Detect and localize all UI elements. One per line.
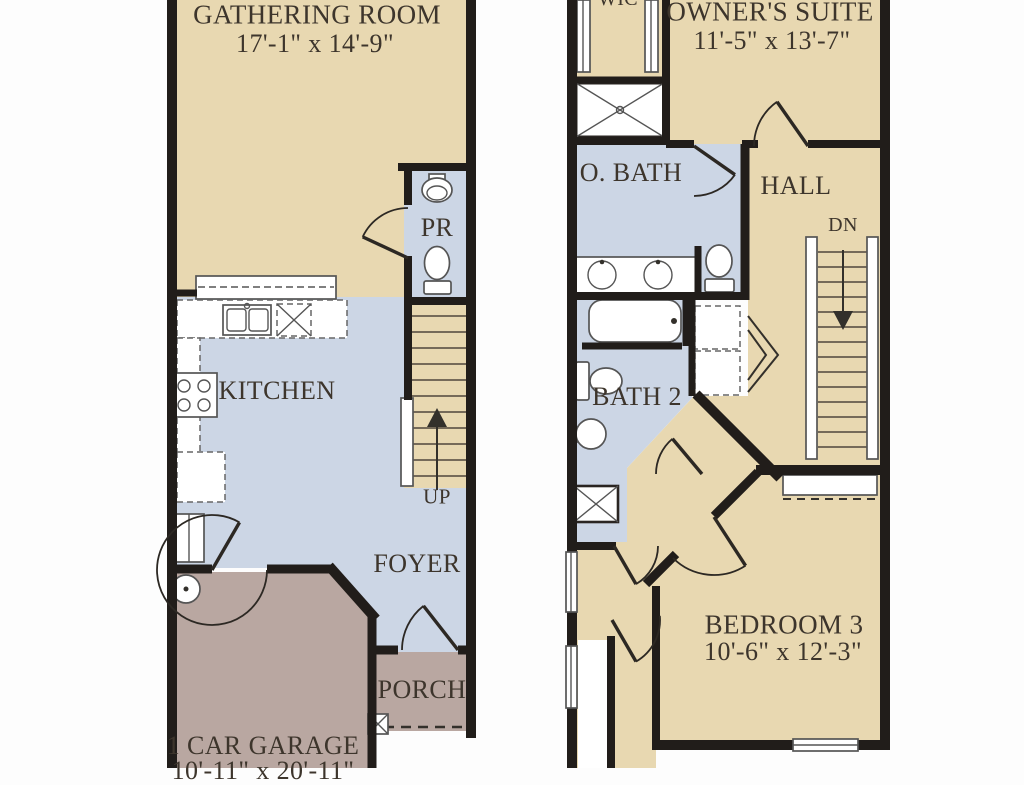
- owners-bath-label: O. BATH: [580, 160, 682, 186]
- owners-suite-label: OWNER'S SUITE: [666, 0, 873, 26]
- foyer-closet: [175, 514, 204, 562]
- double-vanity: [572, 257, 696, 293]
- floorplan-drawing: [0, 0, 1024, 768]
- kitchen-peninsula-counter: [196, 276, 336, 299]
- bedroom3-dims: 10'-6" x 12'-3": [704, 639, 862, 665]
- kitchen-sink: [223, 304, 271, 336]
- up-label: UP: [423, 487, 451, 508]
- bedroom3-closet: [783, 475, 877, 499]
- owners-suite-dims: 11'-5" x 13'-7": [694, 28, 851, 54]
- gathering-room-dims: 17'-1" x 14'-9": [236, 31, 394, 57]
- void-area: [578, 640, 608, 768]
- pr-label: PR: [421, 215, 454, 241]
- window: [566, 552, 577, 612]
- refrigerator: [177, 452, 225, 502]
- dishwasher: [277, 304, 311, 336]
- porch-label: PORCH: [378, 677, 467, 703]
- bedroom3-label: BEDROOM 3: [705, 612, 864, 639]
- dn-label: DN: [828, 215, 858, 235]
- range: [171, 373, 217, 417]
- floorplan-image: { "floor1": { "gathering": {"name": "GAT…: [0, 0, 1024, 768]
- bedroom3-window: [793, 739, 858, 751]
- window: [566, 646, 577, 708]
- stair-handrail-left: [806, 237, 817, 459]
- gathering-room-label: GATHERING ROOM: [193, 2, 441, 29]
- wic-label: WIC: [598, 0, 638, 9]
- foyer-label: FOYER: [373, 551, 460, 577]
- bathtub: [589, 300, 681, 342]
- owners-toilet: [705, 245, 734, 292]
- garage-dims: 10'-11" x 20'-11": [172, 758, 355, 784]
- hall-label: HALL: [761, 173, 832, 199]
- linen-closet: [574, 486, 618, 522]
- pr-toilet: [424, 247, 451, 295]
- bath2-label: BATH 2: [592, 384, 682, 410]
- kitchen-label: KITCHEN: [219, 378, 336, 404]
- stair-handrail-right: [867, 237, 878, 459]
- owners-shower: [576, 83, 664, 137]
- stair-handrail: [401, 398, 413, 486]
